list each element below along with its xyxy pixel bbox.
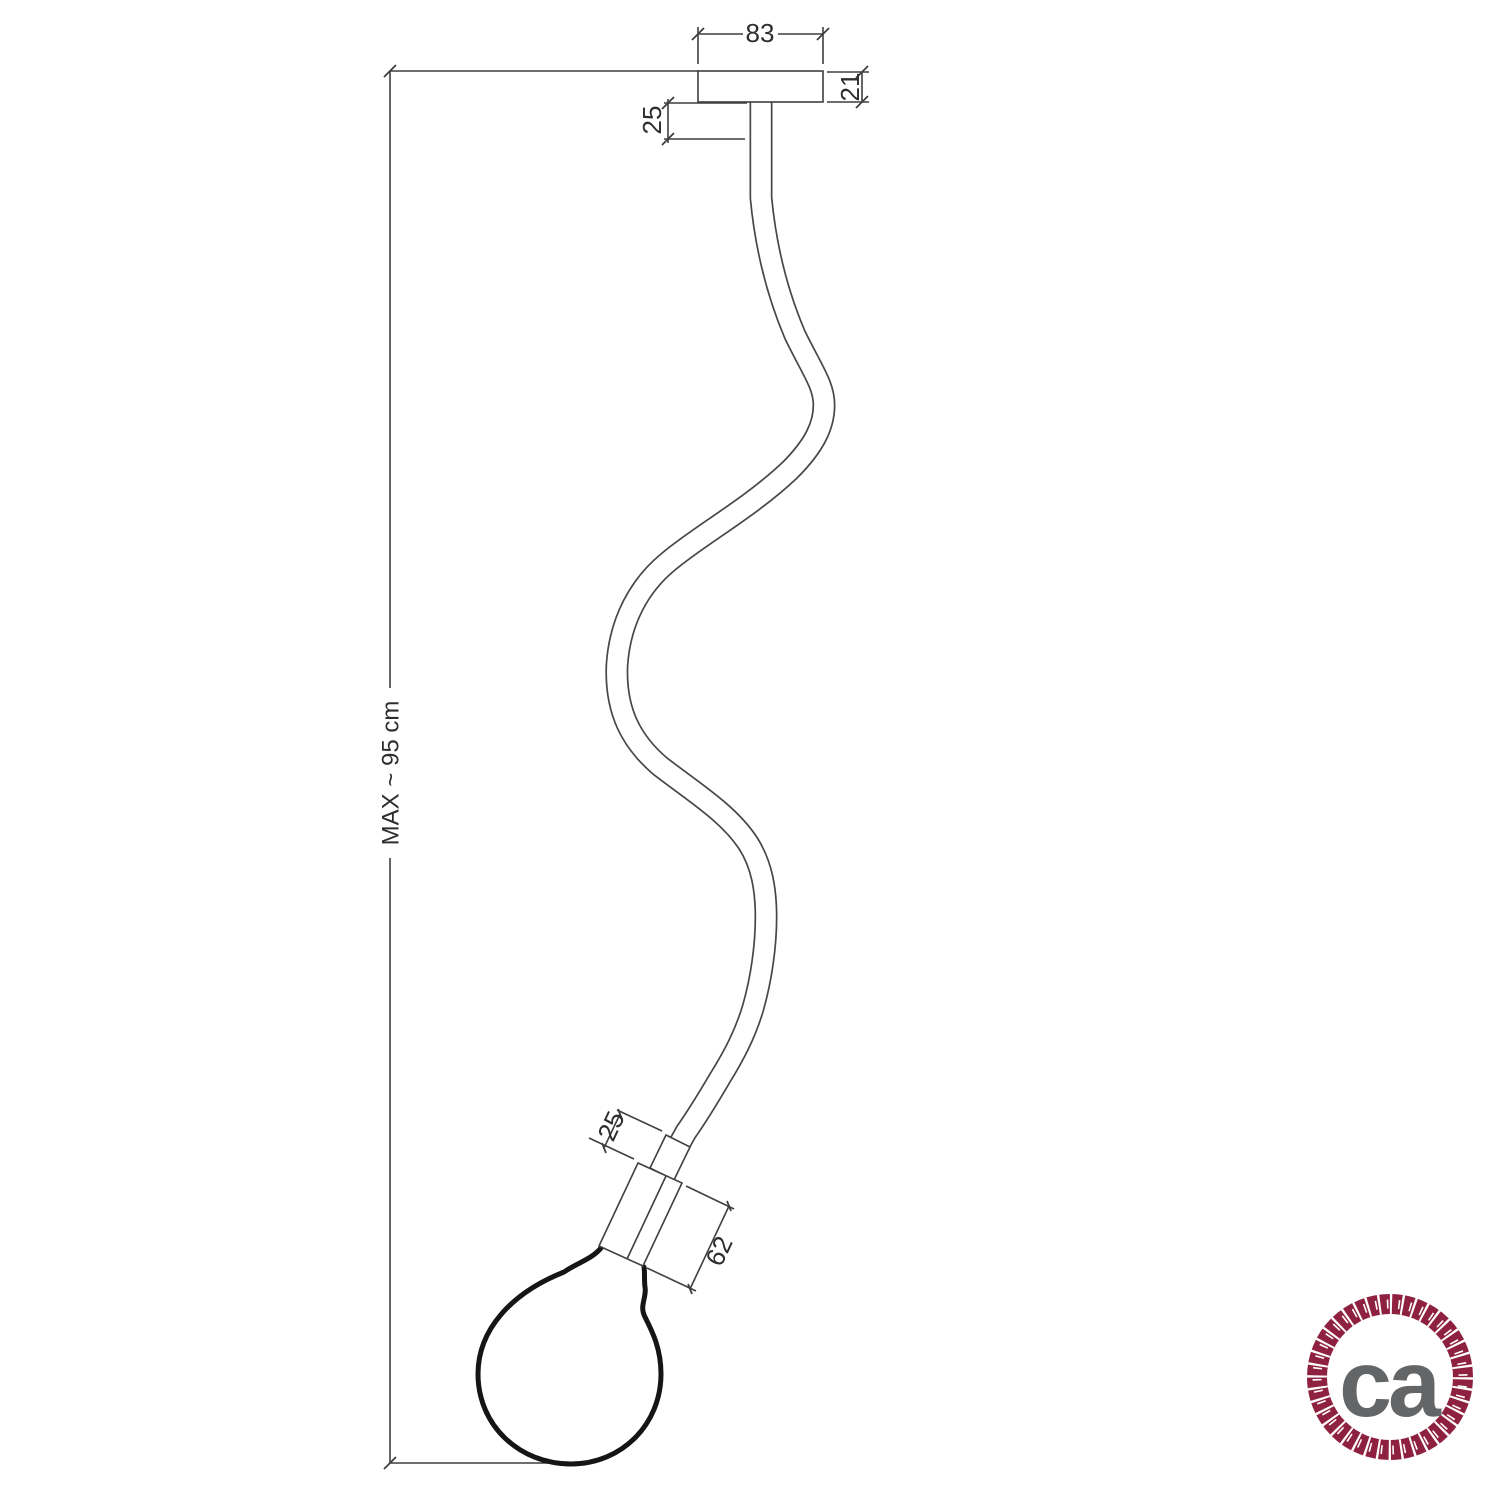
overall-drop-label: MAX ~ 95 cm — [378, 701, 405, 846]
tube-outline — [617, 102, 824, 1150]
holder-stem-label: 25 — [591, 1107, 630, 1146]
holder-stem-dimension: 25 — [589, 1107, 662, 1159]
top-stem-dimension: 25 — [637, 97, 747, 145]
extension-lines — [664, 103, 747, 139]
tube-core — [617, 100, 824, 1150]
holder-length-label: 62 — [699, 1232, 738, 1271]
rose-width-dimension: 83 — [692, 18, 829, 64]
technical-drawing-page: MAX ~ 95 cm 83 21 25 25 — [0, 0, 1500, 1500]
pendant-lamp-diagram: MAX ~ 95 cm 83 21 25 25 — [0, 0, 1500, 1500]
light-bulb — [478, 1248, 661, 1464]
rose-height-dimension: 21 — [827, 66, 869, 108]
top-stem-label: 25 — [637, 106, 667, 135]
ceiling-rose — [698, 71, 823, 102]
rose-height-label: 21 — [835, 73, 865, 102]
lamp-holder — [599, 1163, 682, 1266]
rose-width-label: 83 — [746, 18, 775, 48]
flexible-tube — [617, 100, 824, 1150]
lamp-holder-body — [599, 1163, 682, 1266]
logo-text: ca — [1339, 1331, 1442, 1437]
brand-logo: ca — [1308, 1295, 1473, 1460]
